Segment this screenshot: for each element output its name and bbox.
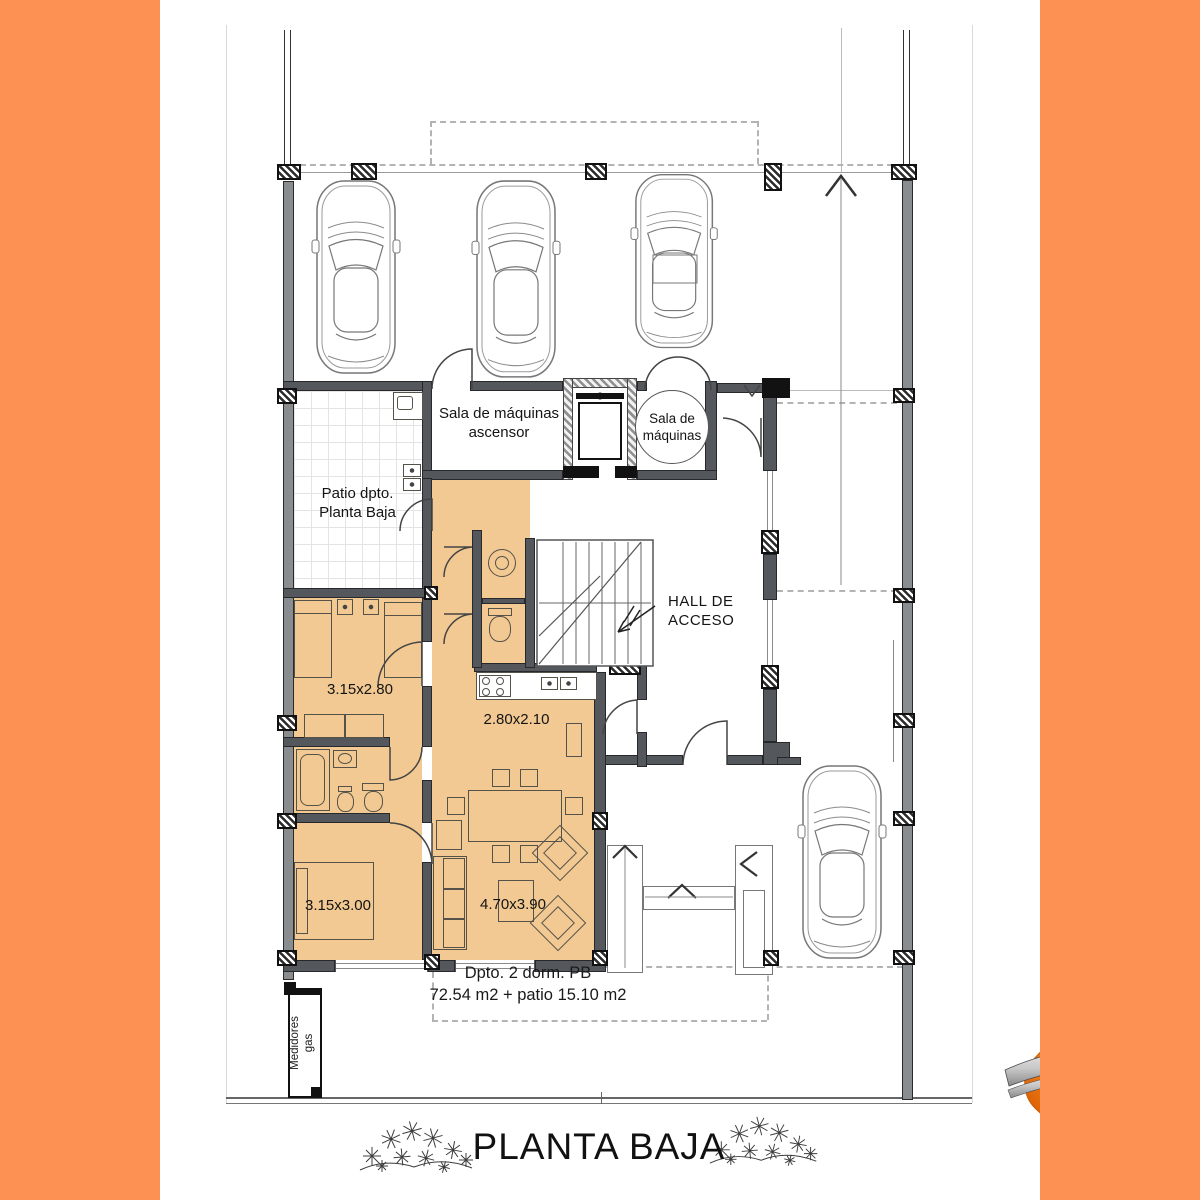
entry-arrow (618, 606, 655, 632)
column-post (277, 950, 297, 966)
driveway-line (777, 390, 893, 391)
elevator-wall (563, 378, 573, 480)
bedroom1-dimension: 3.15x2.80 (320, 681, 400, 698)
apartment-summary-line2: 72.54 m2 + patio 15.10 m2 (418, 984, 638, 1006)
utility-box (403, 464, 421, 477)
toilet-tank (488, 608, 512, 616)
property-line-right (903, 30, 904, 170)
machine-room-elevator-label: Sala de máquinas ascensor (434, 404, 564, 442)
elevator-door-wall (563, 466, 599, 478)
wall-junction (762, 378, 790, 398)
washer-drum (495, 556, 509, 570)
column-post (893, 713, 915, 728)
sheet-center-tick (601, 1092, 602, 1104)
sofa-seat (443, 858, 465, 948)
facade-wall (763, 689, 777, 742)
kitchen-sink (541, 677, 558, 690)
entry-ramp (607, 845, 643, 973)
column-post (277, 715, 297, 731)
dining-table (468, 790, 562, 842)
gate-rail-line (893, 640, 894, 762)
page-title: PLANTA BAJA (399, 1126, 799, 1168)
apartment-summary: Dpto. 2 dorm. PB 72.54 m2 + patio 15.10 … (418, 962, 638, 1006)
nightstand (363, 599, 379, 615)
column-post (764, 163, 782, 191)
bidet (337, 792, 354, 812)
patio-dash-bottom (432, 1020, 767, 1022)
wall (482, 598, 525, 604)
wall (470, 381, 563, 391)
wall (422, 598, 432, 642)
bed-pillow (294, 600, 332, 614)
wall (717, 383, 763, 393)
sofa-cushion-line (443, 918, 465, 920)
kitchen-sink (560, 677, 577, 690)
column-post (893, 811, 915, 826)
chair (447, 797, 465, 815)
wall (283, 381, 432, 391)
driveway-arrow (826, 176, 856, 585)
tv-cabinet (566, 723, 582, 757)
car-icon (798, 766, 886, 958)
elevator-car (578, 402, 622, 460)
apartment-summary-line1: Dpto. 2 dorm. PB (418, 962, 638, 984)
boundary-wall-left (283, 181, 294, 980)
chair (520, 769, 538, 787)
property-line-right2 (909, 30, 910, 170)
door-arc (432, 349, 472, 389)
car-icon (472, 181, 560, 377)
property-line-left2 (290, 30, 291, 172)
toilet-tank (362, 783, 384, 791)
car-icon (631, 175, 717, 348)
parking-dash-right (757, 121, 759, 164)
column-post (424, 586, 438, 600)
driveway-dash-2 (777, 590, 897, 592)
driveway-axis-line (841, 28, 842, 172)
gas-meters-label: Medidores gas (288, 988, 322, 1098)
wall (422, 862, 432, 960)
column-post (351, 163, 377, 180)
wall (422, 470, 563, 480)
parking-dash-top (430, 121, 757, 123)
column-post (277, 164, 301, 180)
chair (492, 845, 510, 863)
column-post (893, 588, 915, 603)
hall-label: HALL DE ACCESO (668, 592, 768, 630)
column-post (609, 661, 641, 675)
sheet-border-bottom2 (226, 1103, 972, 1104)
column-post (585, 163, 607, 180)
car-icon (312, 181, 400, 373)
wall (422, 478, 432, 598)
stove-burner (482, 677, 490, 685)
stove-burner (482, 688, 490, 696)
wall (637, 470, 717, 480)
parking-dash-left (430, 121, 432, 164)
window (335, 960, 428, 972)
wall (637, 381, 647, 391)
nightstand (337, 599, 353, 615)
sofa-cushion-line (443, 888, 465, 890)
sheet-border-right (972, 25, 973, 1103)
wall (472, 530, 482, 668)
wall (422, 780, 432, 823)
kitchen-dimension: 2.80x2.10 (474, 711, 559, 728)
wall (422, 686, 432, 747)
sheet-border-bottom (226, 1097, 972, 1099)
planter-bed-inner (743, 890, 765, 968)
elevator-door-wall (615, 466, 637, 478)
wall (474, 663, 597, 672)
bath-sink-basin (338, 753, 352, 764)
column-post (761, 530, 779, 554)
bathtub-basin (300, 754, 325, 806)
wall (727, 755, 763, 765)
driveway-dash-1 (777, 402, 897, 404)
wall (604, 648, 647, 658)
column-post (611, 540, 641, 554)
window (763, 471, 777, 530)
car-sunroof (653, 255, 697, 283)
chair (565, 797, 583, 815)
column-post (763, 950, 779, 966)
machine-room-label-circle: Sala de máquinas (635, 390, 709, 464)
wardrobe-divider (344, 714, 346, 738)
chair (492, 769, 510, 787)
door-arc (645, 357, 678, 390)
column-post (277, 388, 297, 404)
wall (637, 732, 647, 767)
bedroom2-dimension: 3.15x3.00 (298, 897, 378, 914)
door-arc (683, 721, 727, 765)
patio-label: Patio dpto. Planta Baja (300, 484, 415, 522)
wall (777, 757, 801, 765)
laundry-sink-basin (397, 396, 413, 410)
sheet-border-left (226, 25, 227, 1103)
stove-burner (496, 688, 504, 696)
wall (283, 588, 432, 598)
toilet (489, 616, 511, 642)
toilet (364, 791, 383, 812)
column-post (891, 164, 917, 180)
right-orange-bar (1040, 0, 1200, 1200)
property-line-left (284, 30, 285, 172)
elevator-mechanism (576, 393, 624, 399)
column-post (277, 813, 297, 829)
floor-plan-page: Sala de máquinas ascensor Sala de máquin… (0, 0, 1200, 1200)
entry-walkway (643, 886, 735, 910)
column-post (592, 812, 608, 830)
wall (283, 813, 390, 823)
living-dimension: 4.70x3.90 (472, 896, 554, 913)
end-table (436, 820, 462, 850)
wall (422, 381, 432, 480)
column-post (761, 665, 779, 689)
stove-burner (496, 677, 504, 685)
column-post (893, 950, 915, 965)
elevator-wall (563, 378, 637, 388)
door-arc (603, 700, 637, 734)
bed-pillow (384, 602, 422, 616)
wall (525, 538, 535, 668)
column-post (893, 388, 915, 403)
wall (283, 737, 390, 747)
left-orange-bar (0, 0, 160, 1200)
door-arc (723, 418, 761, 457)
